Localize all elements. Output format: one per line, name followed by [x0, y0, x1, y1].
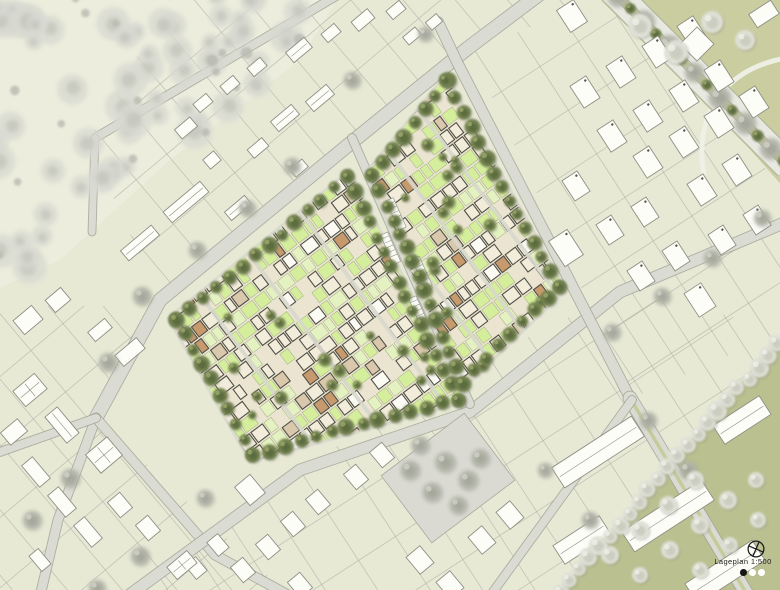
- carousel-dots: [740, 569, 765, 576]
- slide-dot-2[interactable]: [749, 569, 756, 576]
- slide-dot-3[interactable]: [758, 569, 765, 576]
- site-plan-svg: [0, 0, 780, 590]
- slide-dot-1[interactable]: [740, 569, 747, 576]
- site-plan: Lageplan 1:500: [0, 0, 780, 590]
